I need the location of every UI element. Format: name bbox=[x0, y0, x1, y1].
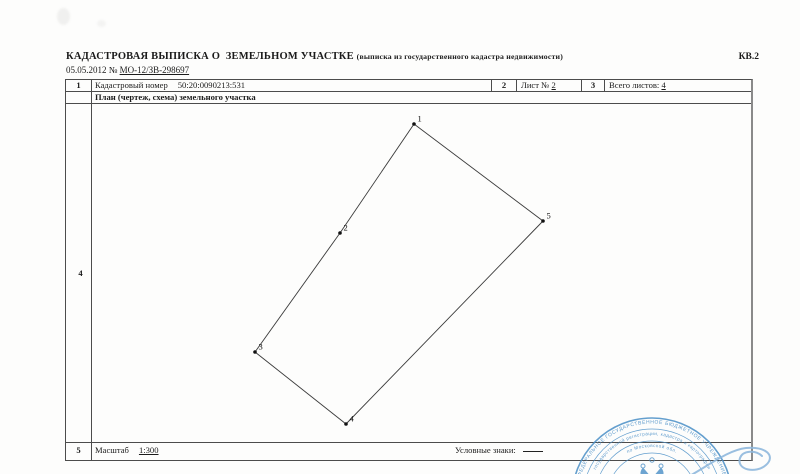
table-row-plan-title: План (чертеж, схема) земельного участка bbox=[66, 92, 751, 104]
document-date: 05.05.2012 bbox=[66, 65, 107, 75]
plot-vertex-point bbox=[344, 422, 348, 426]
table-row-cadastral-number: 1 Кадастровый номер50:20:0090213:531 2 Л… bbox=[66, 80, 751, 92]
document-title-line: КАДАСТРОВАЯ ВЫПИСКА О ЗЕМЕЛЬНОМ УЧАСТКЕ … bbox=[66, 51, 686, 62]
form-code-label: КВ.2 bbox=[739, 52, 759, 62]
plot-vertex-point bbox=[253, 350, 257, 354]
total-sheets-label: Всего листов: bbox=[609, 80, 659, 90]
scan-smudge bbox=[57, 8, 70, 25]
number-sign: № bbox=[109, 65, 118, 75]
row-number-5: 5 bbox=[66, 443, 91, 460]
scale-value: 1:300 bbox=[139, 445, 159, 455]
row-number-2: 2 bbox=[491, 80, 516, 91]
cadastral-number-label: Кадастровый номер bbox=[95, 80, 168, 90]
sheet-label: Лист № bbox=[521, 80, 549, 90]
legend-label: Условные знаки: bbox=[455, 445, 516, 455]
cadastral-number-cell: Кадастровый номер50:20:0090213:531 bbox=[91, 80, 491, 91]
document-title-note: (выписка из государственного кадастра не… bbox=[357, 52, 563, 61]
sheet-cell: Лист № 2 bbox=[516, 80, 581, 91]
official-round-stamp: ФЕДЕРАЛЬНОЕ ГОСУДАРСТВЕННОЕ БЮДЖЕТНОЕ УЧ… bbox=[560, 408, 800, 474]
plot-vertex-point bbox=[541, 219, 545, 223]
document-title: КАДАСТРОВАЯ ВЫПИСКА О ЗЕМЕЛЬНОМ УЧАСТКЕ bbox=[66, 51, 354, 62]
sheet-value: 2 bbox=[552, 80, 556, 90]
plot-boundary-line bbox=[255, 352, 346, 424]
plot-vertex-label: 5 bbox=[547, 211, 551, 221]
plot-vertex-label: 1 bbox=[418, 114, 422, 124]
plot-vertex-label: 4 bbox=[350, 414, 355, 424]
row-number-1: 1 bbox=[66, 80, 91, 91]
document-number: МО-12/ЗВ-298697 bbox=[120, 65, 190, 75]
cadastral-extract-page: КАДАСТРОВАЯ ВЫПИСКА О ЗЕМЕЛЬНОМ УЧАСТКЕ … bbox=[0, 0, 800, 474]
plot-vertex-point bbox=[412, 122, 416, 126]
stamp-inner-text: по Московской обл. bbox=[626, 443, 678, 454]
double-headed-eagle-emblem bbox=[622, 458, 682, 474]
scale-cell: Масштаб1:300 bbox=[91, 443, 451, 460]
plan-section-title: План (чертеж, схема) земельного участка bbox=[91, 92, 754, 103]
land-plot-plan-drawing: 12345 bbox=[66, 104, 754, 443]
plot-boundary-line bbox=[255, 233, 340, 352]
plot-vertex-label: 2 bbox=[344, 223, 348, 233]
plot-vertex-label: 3 bbox=[259, 342, 263, 352]
plot-boundary-line bbox=[414, 124, 543, 221]
row-number-3: 3 bbox=[581, 80, 604, 91]
total-sheets-value: 4 bbox=[661, 80, 665, 90]
legend-boundary-line-sample bbox=[523, 451, 543, 452]
document-header: КАДАСТРОВАЯ ВЫПИСКА О ЗЕМЕЛЬНОМ УЧАСТКЕ … bbox=[66, 51, 686, 75]
plot-vertex-point bbox=[338, 231, 342, 235]
cadastral-number-value: 50:20:0090213:531 bbox=[178, 80, 245, 90]
document-date-line: 05.05.2012 № МО-12/ЗВ-298697 bbox=[66, 65, 686, 75]
scale-label: Масштаб bbox=[95, 445, 129, 455]
plot-boundary-line bbox=[340, 124, 414, 233]
table-row-plan-drawing: 4 12345 bbox=[66, 104, 751, 443]
cadastral-table: 1 Кадастровый номер50:20:0090213:531 2 Л… bbox=[65, 79, 753, 461]
plot-boundary-line bbox=[346, 221, 543, 424]
scan-smudge bbox=[97, 20, 106, 27]
total-sheets-cell: Всего листов: 4 bbox=[604, 80, 754, 91]
